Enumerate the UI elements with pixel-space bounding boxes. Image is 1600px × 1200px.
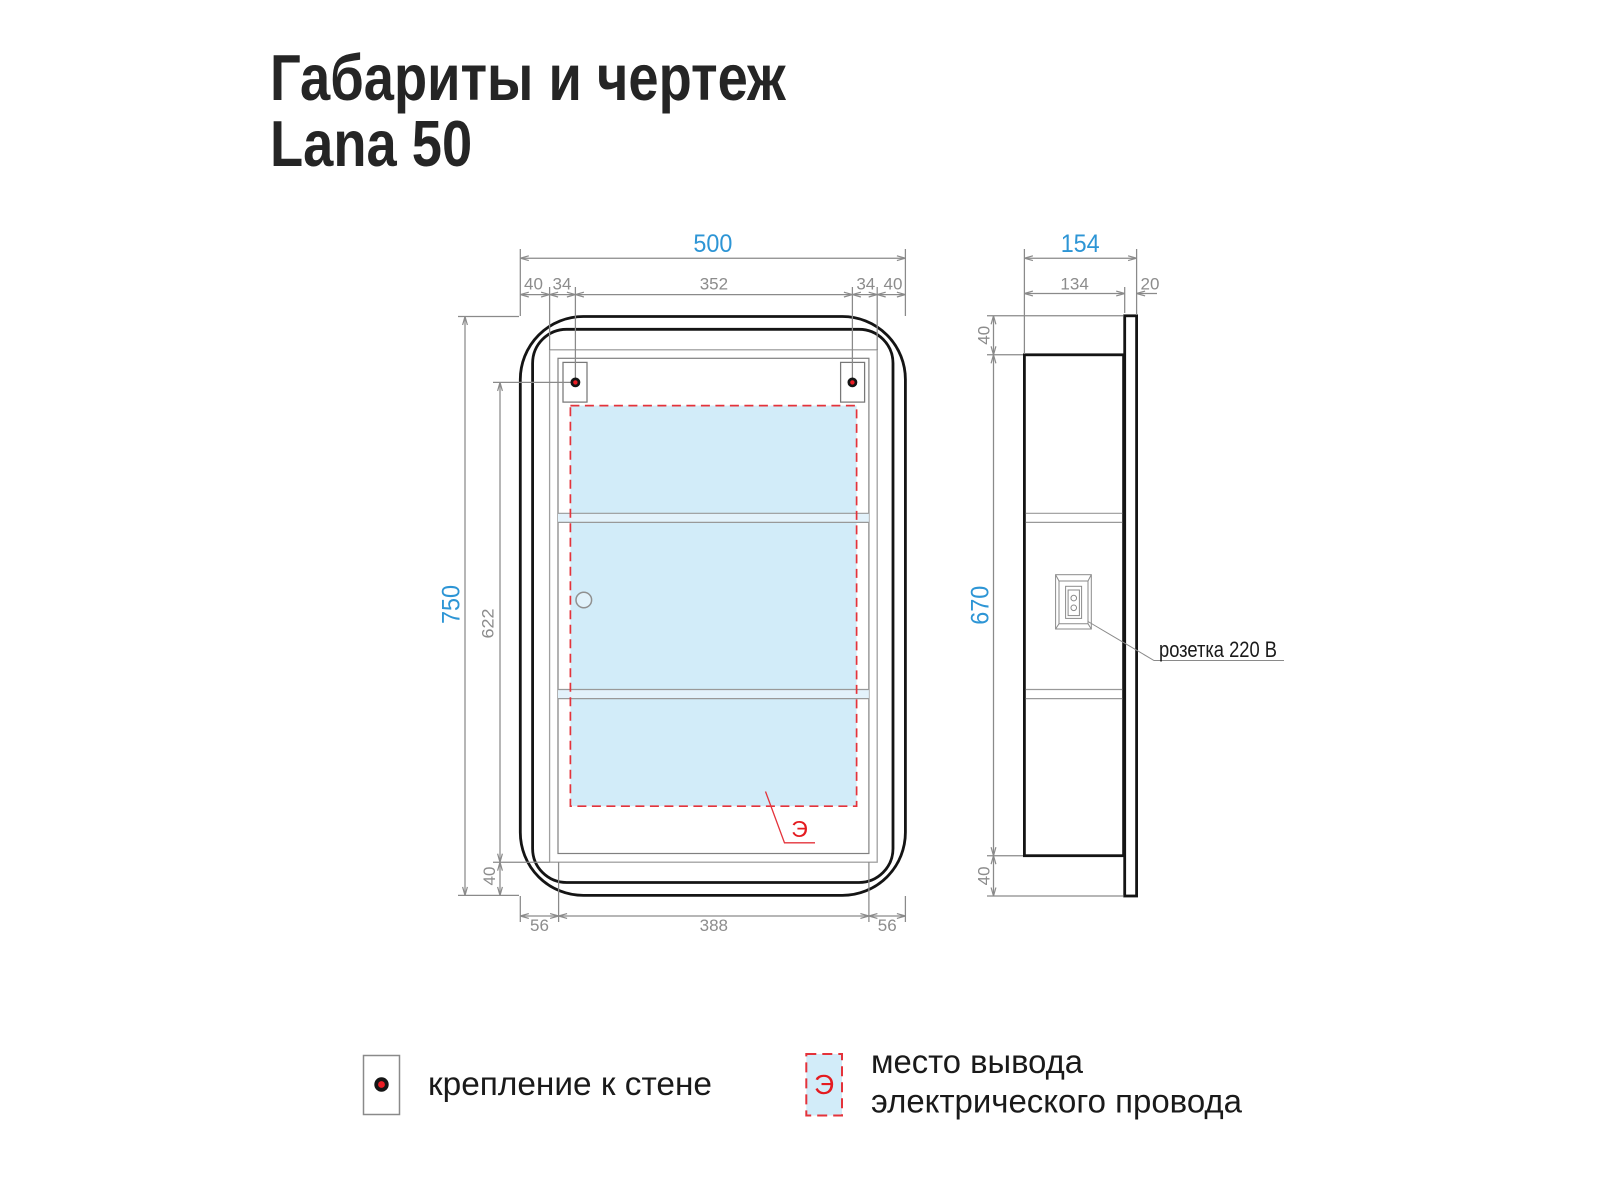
- svg-text:электрического провода: электрического провода: [871, 1083, 1243, 1120]
- svg-text:622: 622: [479, 609, 498, 639]
- svg-text:крепление к стене: крепление к стене: [428, 1065, 712, 1102]
- svg-text:388: 388: [700, 916, 728, 935]
- svg-text:Э: Э: [791, 816, 808, 842]
- svg-text:500: 500: [693, 230, 732, 258]
- svg-text:352: 352: [700, 274, 728, 293]
- svg-text:розетка 220 В: розетка 220 В: [1159, 637, 1277, 662]
- svg-text:40: 40: [524, 274, 543, 293]
- svg-text:34: 34: [856, 274, 875, 293]
- svg-text:134: 134: [1060, 274, 1088, 293]
- svg-text:154: 154: [1061, 230, 1100, 258]
- svg-text:Э: Э: [814, 1069, 834, 1100]
- svg-text:40: 40: [975, 866, 994, 885]
- svg-text:20: 20: [1141, 274, 1160, 293]
- svg-text:место вывода: место вывода: [871, 1043, 1084, 1080]
- svg-text:56: 56: [530, 916, 549, 935]
- svg-text:750: 750: [438, 585, 466, 624]
- svg-text:40: 40: [480, 867, 499, 886]
- svg-text:670: 670: [967, 586, 995, 625]
- svg-text:40: 40: [884, 274, 903, 293]
- svg-text:56: 56: [878, 916, 897, 935]
- svg-text:40: 40: [975, 326, 994, 345]
- svg-text:34: 34: [553, 274, 572, 293]
